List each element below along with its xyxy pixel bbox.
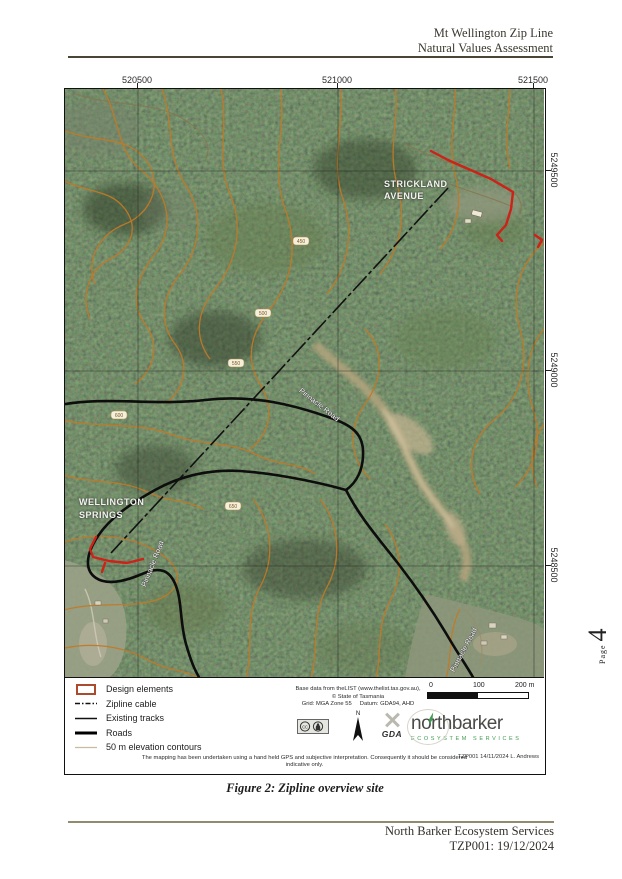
northbarker-logo: northbarker ECOSYSTEM SERVICES [411,713,541,742]
mapping-disclaimer: The mapping has been undertaken using a … [135,755,474,769]
base-data-attribution: Base data from theLIST (www.thelist.tas.… [287,686,429,709]
header-rule [68,56,553,58]
footer-ref: TZP001: 19/12/2024 [200,839,554,854]
brand-wordmark: northbarker [411,713,541,735]
svg-text:cc: cc [302,725,308,731]
wellington-springs-label: WELLINGTON [79,497,144,507]
grid-tick [546,370,551,371]
contour-elevation-label: 450 [293,237,309,245]
creative-commons-icon: cc [297,719,329,739]
gda-x-icon [382,711,402,729]
zipline-swatch [75,702,97,705]
svg-text:650: 650 [229,504,238,510]
page-number-marker: Page 4 [576,594,610,664]
doc-title: Mt Wellington Zip Line [68,26,553,41]
page-word: Page [598,644,610,664]
roads-swatch [75,731,97,735]
grid-tick [546,170,551,171]
scale-bar: 0 100 200 m [427,682,539,699]
map-canvas: 450 500 550 600 [65,89,544,677]
svg-text:AVENUE: AVENUE [384,191,424,201]
page-number: 4 [586,628,610,641]
contour-elevation-label: 500 [255,309,271,317]
map-legend-panel: Design elements Zipline cable Existing t… [65,677,544,773]
footer-rule [68,821,554,823]
gda-logo: GDA [379,711,405,739]
map-figure: 450 500 550 600 [64,88,546,775]
svg-text:600: 600 [115,413,124,419]
existing-tracks-swatch [75,717,97,720]
strickland-avenue-label: STRICKLAND [384,179,448,189]
design-elements-swatch [75,684,97,695]
svg-text:450: 450 [297,239,306,245]
figure-caption: Figure 2: Zipline overview site [64,781,546,796]
svg-text:500: 500 [259,311,268,317]
grid-tick [546,565,551,566]
svg-text:SPRINGS: SPRINGS [79,510,123,520]
logo-row: cc N GDA northbarker [293,711,541,753]
legend-items: Design elements Zipline cable Existing t… [75,684,202,752]
compass-needle-icon [427,710,435,732]
contours-swatch [75,746,97,749]
document-footer: North Barker Ecosystem Services TZP001: … [200,824,554,853]
grid-note: Grid: MGA Zone 55 [302,701,352,707]
document-page: Mt Wellington Zip Line Natural Values As… [0,0,622,879]
north-arrow-icon: N [351,711,365,745]
footer-org: North Barker Ecosystem Services [200,824,554,839]
legend-item-existing-tracks: Existing tracks [75,713,202,723]
contour-elevation-label: 550 [228,359,244,367]
document-header: Mt Wellington Zip Line Natural Values As… [68,26,553,56]
contour-elevation-label: 600 [111,411,127,419]
datum-note: Datum: GDA94, AHD [360,701,414,707]
svg-text:550: 550 [232,361,241,367]
legend-item-roads: Roads [75,728,202,738]
legend-item-contours: 50 m elevation contours [75,742,202,752]
doc-subtitle: Natural Values Assessment [68,41,553,56]
legend-item-zipline-cable: Zipline cable [75,699,202,709]
contour-elevation-label: 650 [225,502,241,510]
legend-item-design-elements: Design elements [75,684,202,694]
